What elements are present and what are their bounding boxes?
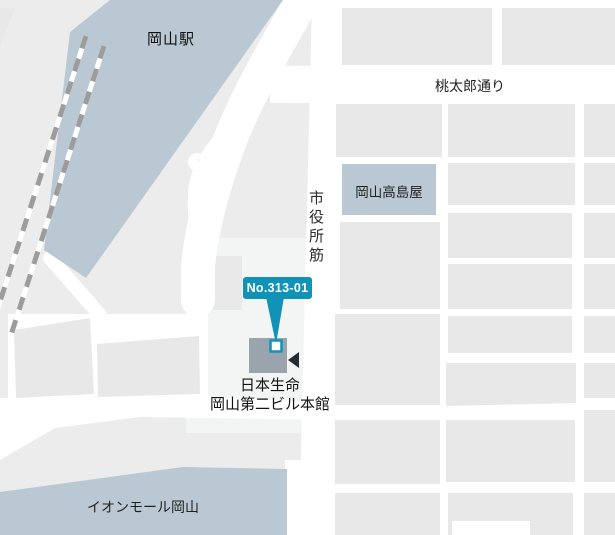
city-block bbox=[342, 8, 492, 65]
block-notch bbox=[452, 521, 530, 535]
city-block bbox=[446, 363, 576, 406]
target-building-name-line2: 岡山第二ビル本館 bbox=[188, 396, 352, 415]
shiyakusho-road-label: 市役所筋 bbox=[305, 190, 326, 266]
station-label: 岡山駅 bbox=[130, 28, 212, 49]
city-block bbox=[584, 104, 615, 157]
takashimaya-label: 岡山高島屋 bbox=[342, 181, 436, 201]
access-map: 岡山駅 桃太郎通り 市役所筋 岡山高島屋 イオンモール岡山 日本生命 岡山第二ビ… bbox=[0, 0, 615, 535]
city-block bbox=[336, 104, 442, 157]
momotaro-road-label: 桃太郎通り bbox=[418, 76, 522, 96]
city-block bbox=[584, 316, 615, 353]
city-block bbox=[448, 213, 572, 258]
location-marker-square bbox=[271, 341, 282, 352]
city-block bbox=[584, 264, 615, 309]
aeon-side-road bbox=[285, 460, 301, 535]
city-block bbox=[448, 104, 575, 157]
target-building-name-line1: 日本生命 bbox=[188, 377, 352, 396]
city-block bbox=[584, 493, 615, 535]
target-building-label: 日本生命 岡山第二ビル本館 bbox=[188, 377, 352, 414]
city-block bbox=[14, 318, 94, 398]
city-block bbox=[335, 420, 440, 484]
city-block bbox=[502, 8, 615, 65]
city-block bbox=[448, 163, 575, 205]
city-block bbox=[448, 264, 572, 309]
aeon-mall-label: イオンモール岡山 bbox=[68, 497, 218, 517]
city-block bbox=[584, 410, 615, 482]
location-badge: No.313-01 bbox=[243, 277, 312, 299]
city-block bbox=[446, 420, 575, 482]
city-block bbox=[584, 213, 615, 258]
city-block bbox=[584, 163, 615, 205]
city-block bbox=[97, 336, 200, 397]
city-block bbox=[335, 493, 440, 535]
city-block bbox=[448, 316, 572, 353]
cross-street bbox=[333, 483, 615, 493]
map-canvas bbox=[0, 0, 615, 535]
city-block bbox=[584, 363, 615, 398]
city-block bbox=[340, 222, 440, 309]
